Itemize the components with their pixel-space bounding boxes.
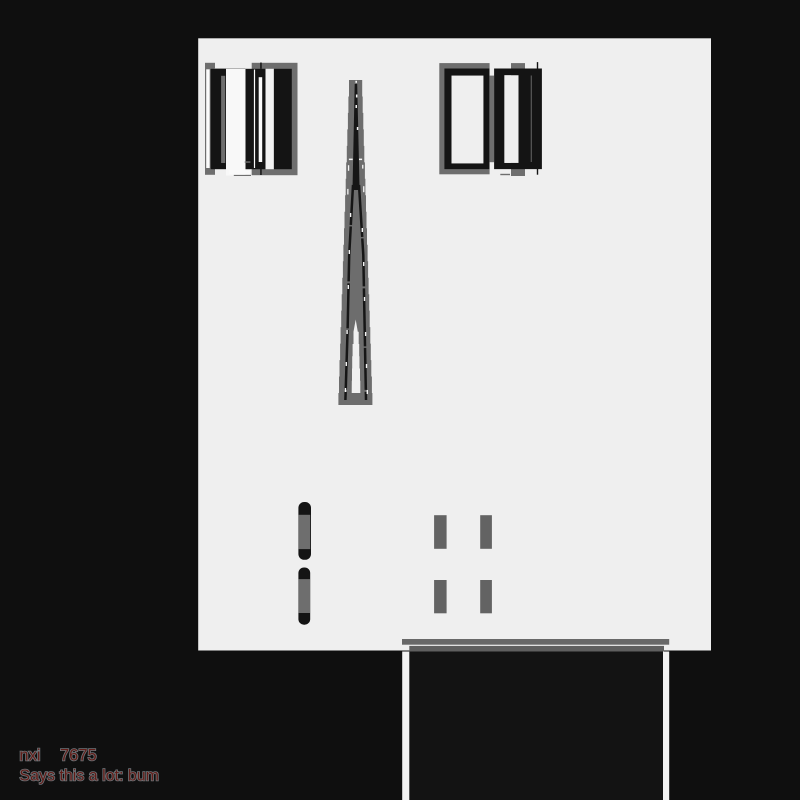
svg-text:7675: 7675 <box>60 747 97 765</box>
svg-text:nxi: nxi <box>19 747 40 765</box>
svg-text:Says this a lot: bum: Says this a lot: bum <box>19 767 159 784</box>
